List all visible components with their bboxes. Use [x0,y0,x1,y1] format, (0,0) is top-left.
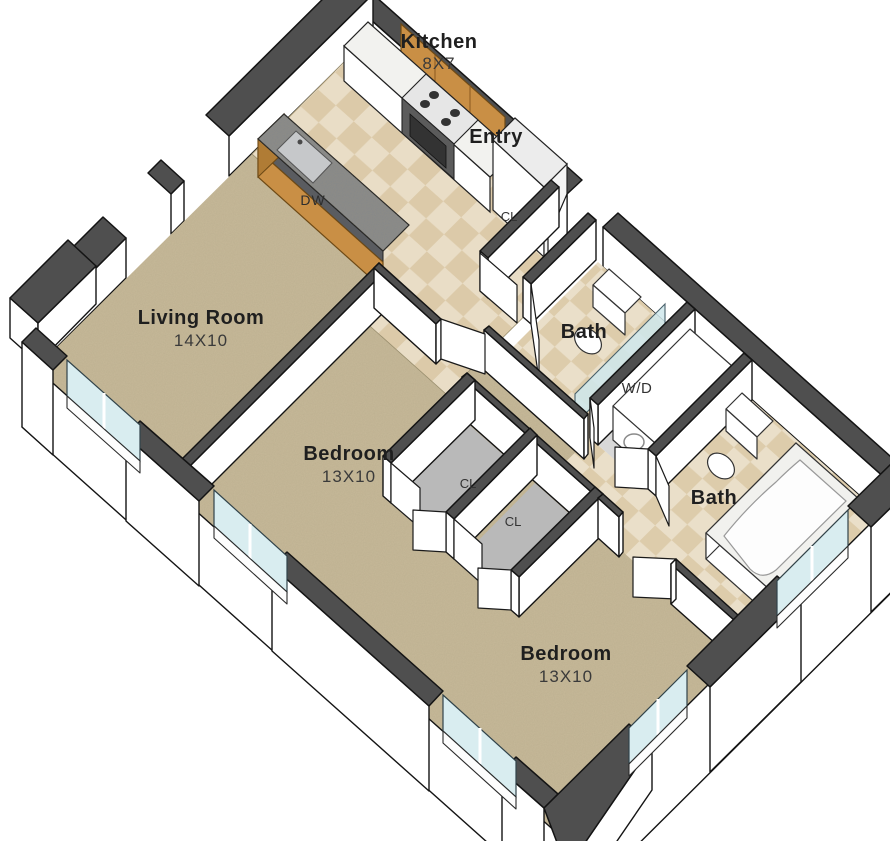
entry-closet-label: CL [501,209,518,224]
stove-burner [441,118,451,126]
bedroom2-dims: 13X10 [539,667,593,686]
living-room-dims: 14X10 [174,331,228,350]
floor-plan-canvas: Kitchen 8X7 Entry CL DW Living Room 14X1… [0,0,890,841]
washer-dryer-label: W/D [622,380,653,397]
br2-wall-seg1-cap [619,512,623,557]
laundry-door-right [615,447,648,489]
bedroom2-door-leaf [633,557,676,599]
closet2-label: CL [505,514,522,529]
kitchen-dims: 8X7 [422,54,455,73]
bath2-label: Bath [691,487,737,509]
stove-burner [429,91,439,99]
bedroom2-label: Bedroom [520,643,611,665]
closet-divider-wall-cap [446,512,454,559]
sink-faucet [298,140,303,145]
closet-right-wall-cap [511,570,519,617]
bath1-label: Bath [561,321,607,343]
closet1-label: CL [460,476,477,491]
kitchen-label: Kitchen [401,31,478,53]
dishwasher-label: DW [300,192,325,208]
bath1-left-wall-cap [523,277,531,324]
bath1-front-wall-cap [584,414,588,459]
closet2-door-ajar [478,568,511,610]
hall-br1-wall-cap [436,319,441,364]
bedroom1-dims: 13X10 [322,467,376,486]
stove-burner [450,109,460,117]
living-room-label: Living Room [138,307,265,329]
br2-wall-seg2-cap [671,559,676,604]
floor-plan-page: Kitchen 8X7 Entry CL DW Living Room 14X1… [0,0,890,841]
laundry-right-wall-cap [648,449,656,496]
closet1-door-ajar [413,510,446,552]
entry-label: Entry [469,126,523,148]
stove-burner [420,100,430,108]
bedroom1-label: Bedroom [303,443,394,465]
